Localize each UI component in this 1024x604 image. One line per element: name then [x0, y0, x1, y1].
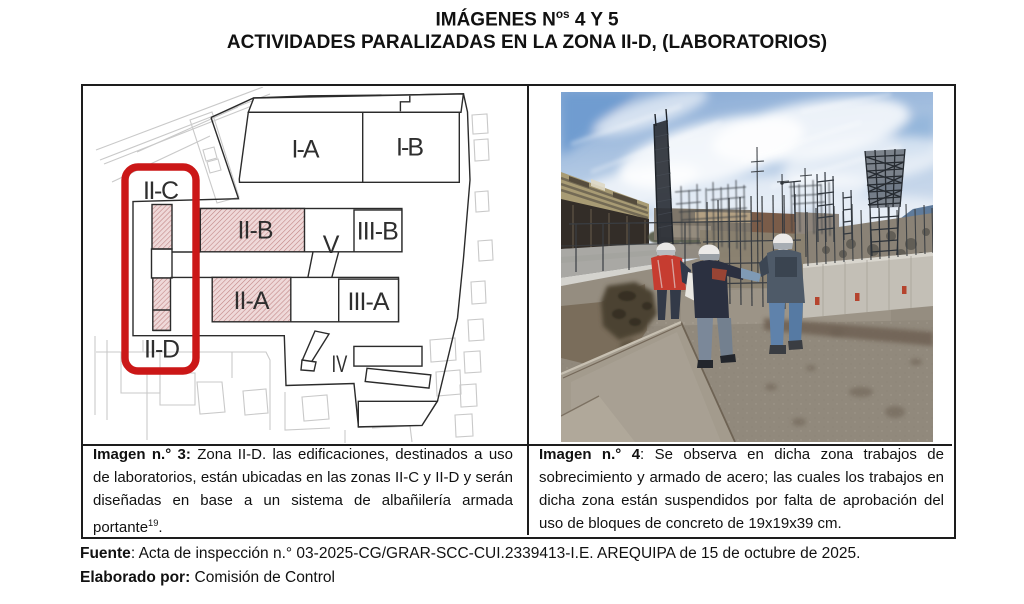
svg-text:III-A: III-A	[348, 288, 390, 316]
svg-text:II-B: II-B	[238, 217, 274, 245]
svg-text:V: V	[323, 231, 340, 259]
svg-text:II-A: II-A	[234, 287, 270, 315]
svg-text:I-B: I-B	[396, 134, 424, 162]
svg-text:III-B: III-B	[357, 218, 399, 246]
svg-text:II-C: II-C	[143, 177, 179, 205]
svg-text:I-A: I-A	[292, 136, 320, 164]
svg-text:IV: IV	[332, 351, 348, 378]
svg-text:II-D: II-D	[144, 336, 180, 364]
